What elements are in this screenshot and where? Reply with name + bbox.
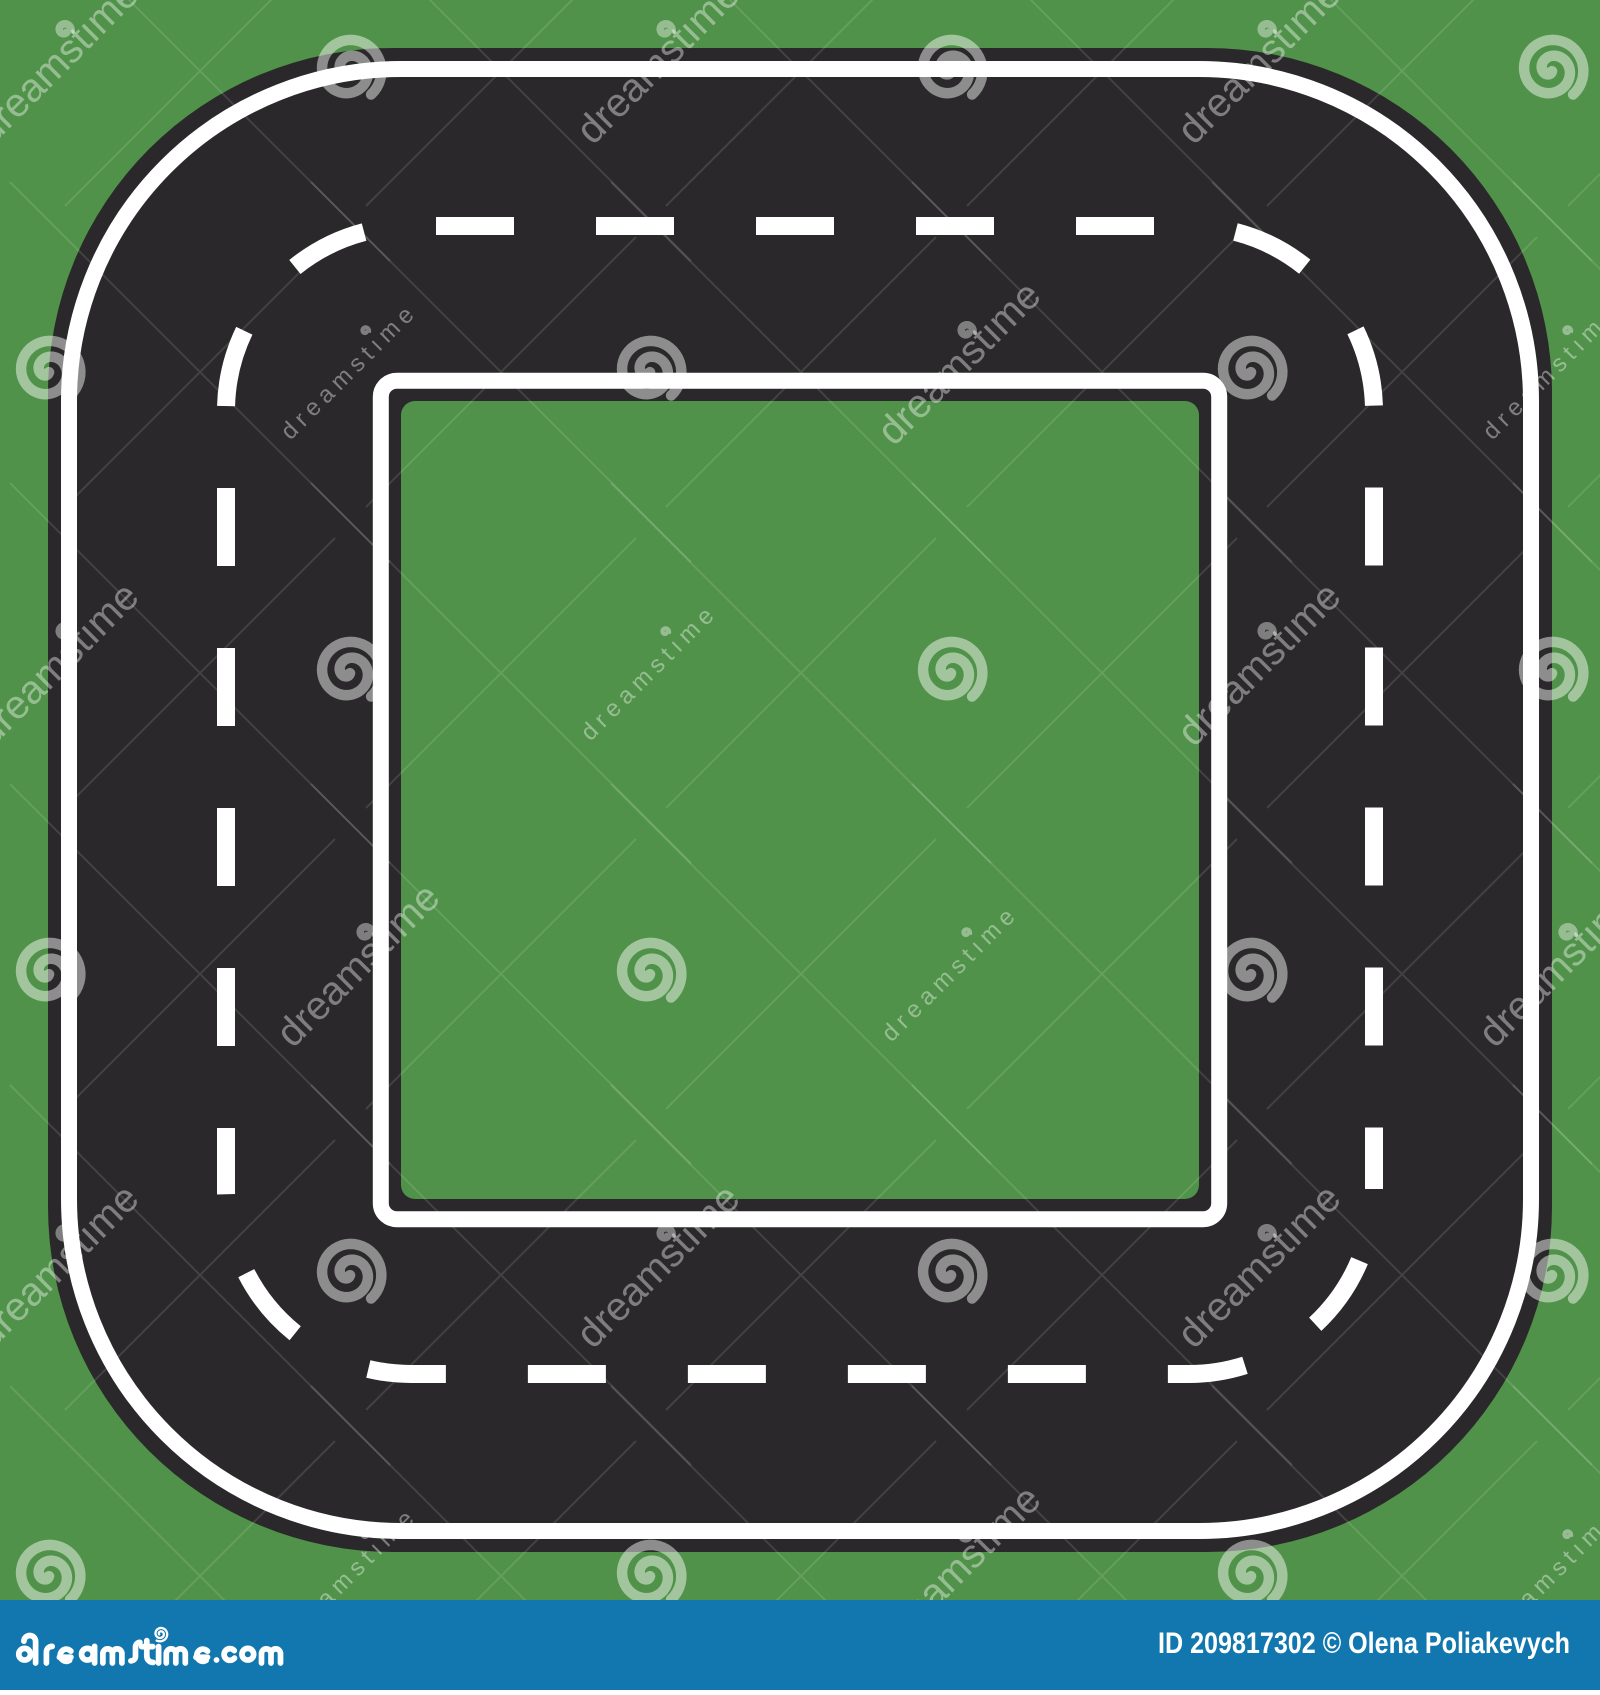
svg-text:ID 209817302 © Olena Poliakevy: ID 209817302 © Olena Poliakevych [1158, 1627, 1570, 1660]
